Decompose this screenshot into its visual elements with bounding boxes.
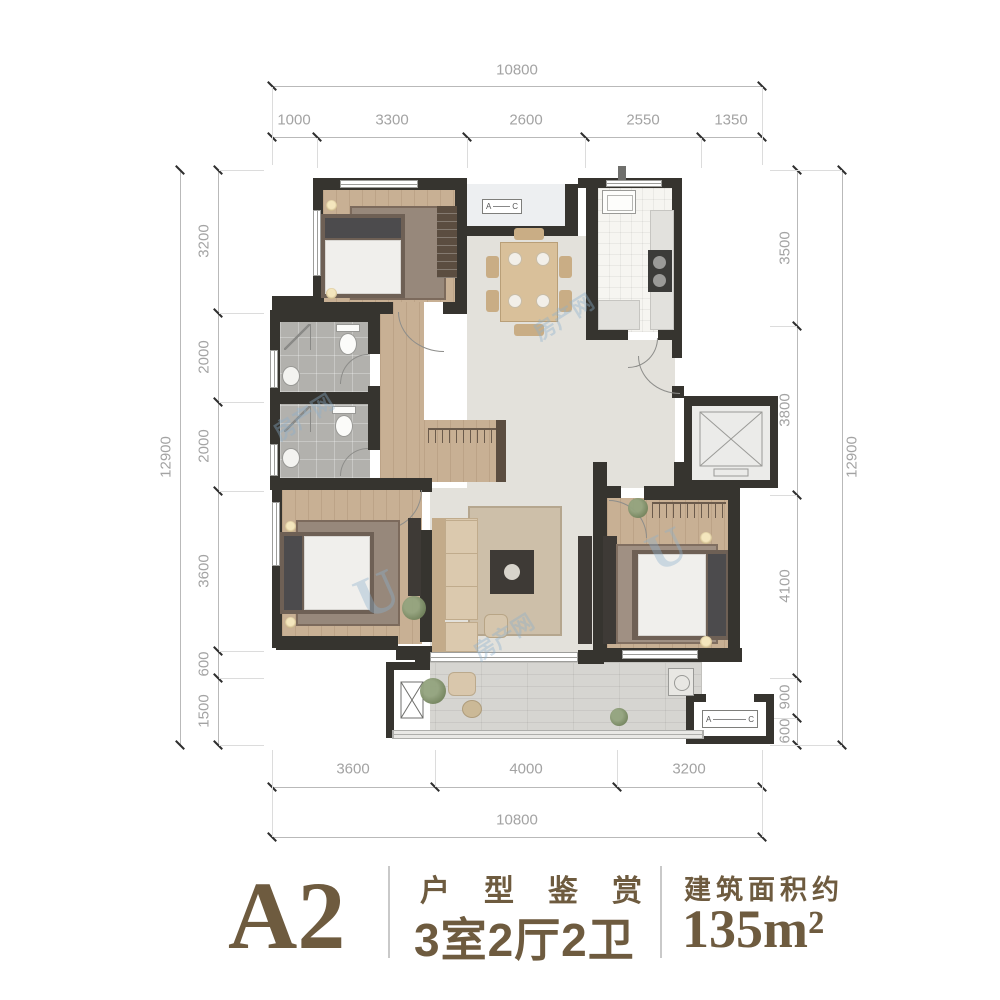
bed-pillows <box>284 536 302 610</box>
dining-chair <box>514 324 544 336</box>
dim-label: 3500 <box>777 231 794 264</box>
lamp <box>285 521 296 532</box>
plant <box>402 596 426 620</box>
lamp <box>700 532 712 544</box>
balcony-sliding-door <box>430 652 578 662</box>
burner <box>653 256 666 269</box>
dim-label: 3300 <box>375 112 408 129</box>
lamp <box>285 617 296 628</box>
ac-unit-label: AC <box>482 199 522 214</box>
elevator-wall <box>770 396 778 488</box>
ac-label-a: A <box>486 202 491 211</box>
dim-label: 2000 <box>196 340 213 373</box>
dining-chair <box>514 228 544 240</box>
dim-extension <box>467 138 468 168</box>
shower <box>284 406 311 432</box>
dim-line <box>272 86 762 87</box>
plant <box>610 708 628 726</box>
dim-label: 2550 <box>626 112 659 129</box>
dim-label: 2000 <box>196 429 213 462</box>
window <box>340 180 418 188</box>
laundry-sink <box>668 668 694 696</box>
lamp <box>326 288 337 299</box>
dim-label: 4100 <box>777 569 794 602</box>
bed-duvet <box>304 536 370 610</box>
dim-extension <box>219 651 264 652</box>
dim-extension <box>770 170 842 171</box>
dim-label: 3200 <box>672 761 705 778</box>
sink-basin <box>607 195 633 211</box>
ac-unit-label: AC <box>702 710 758 728</box>
dim-extension <box>219 170 264 171</box>
bed-pillows <box>325 218 401 238</box>
pouf <box>484 614 508 638</box>
sofa-back <box>432 518 445 652</box>
ac-label-line <box>493 206 510 207</box>
ac-label-line <box>713 719 746 720</box>
dim-label: 600 <box>777 718 794 743</box>
dim-line <box>272 787 762 788</box>
dim-label: 2600 <box>509 112 542 129</box>
tv-cabinet <box>408 518 421 596</box>
clothes-rail <box>652 502 726 518</box>
ac-label-a: A <box>706 715 711 724</box>
window <box>622 650 698 659</box>
sofa-chaise <box>445 622 478 652</box>
window <box>270 350 278 388</box>
area-value: 135m² <box>682 898 824 960</box>
wall <box>586 178 598 340</box>
plate <box>536 294 550 308</box>
wall <box>270 478 378 490</box>
wall <box>420 530 432 642</box>
wall <box>272 392 372 404</box>
dim-extension <box>770 326 797 327</box>
dim-extension <box>770 678 797 679</box>
burner <box>653 274 666 287</box>
closet-hanger-rail <box>428 428 498 443</box>
dining-chair <box>486 256 499 278</box>
tv-cabinet <box>578 536 592 644</box>
wall <box>443 302 467 314</box>
dim-extension <box>770 745 842 746</box>
dining-chair <box>559 256 572 278</box>
dim-extension <box>617 750 618 787</box>
sink-basin <box>674 675 690 691</box>
wall <box>386 662 394 738</box>
dim-label: 10800 <box>496 812 538 829</box>
dim-extension <box>770 495 797 496</box>
dim-extension <box>219 491 264 492</box>
balcony-railing <box>392 730 704 739</box>
floor-plan-page: 10800 1000 3300 2600 2550 1350 12900 320… <box>0 0 1000 1000</box>
bed-duvet <box>638 554 706 636</box>
elevator-wall <box>684 480 778 488</box>
wardrobe <box>437 206 457 278</box>
dining-chair <box>486 290 499 312</box>
dim-line <box>797 170 798 745</box>
dim-label: 3600 <box>196 554 213 587</box>
tv-cabinet <box>603 536 617 644</box>
toilet <box>332 406 356 414</box>
dim-extension <box>701 138 702 168</box>
closet-cabinet <box>496 420 506 482</box>
elevator-wall <box>684 396 692 488</box>
stove <box>648 250 672 292</box>
kitchen-sink <box>602 190 636 214</box>
dim-extension <box>435 750 436 787</box>
dim-label: 1500 <box>196 694 213 727</box>
wall <box>644 486 740 500</box>
dim-line <box>180 170 181 745</box>
shower <box>284 324 311 350</box>
dim-line <box>272 837 762 838</box>
plate <box>508 252 522 266</box>
wall <box>586 330 628 340</box>
elevator-cab <box>692 406 770 480</box>
window <box>313 210 321 276</box>
footer-divider <box>388 866 390 958</box>
plate <box>536 252 550 266</box>
toilet <box>335 415 353 437</box>
dim-label: 10800 <box>496 62 538 79</box>
ac-label-c: C <box>748 715 754 724</box>
dim-extension <box>762 750 763 837</box>
elevator-cross-icon <box>692 406 770 480</box>
dim-extension <box>762 87 763 165</box>
window <box>272 502 280 566</box>
balcony-chair <box>448 672 476 696</box>
dim-extension <box>219 745 264 746</box>
wall <box>593 462 607 500</box>
wall <box>368 310 380 354</box>
wall <box>313 302 393 314</box>
faucet-icon <box>618 166 626 180</box>
plan-code: A2 <box>228 868 345 964</box>
dim-label: 12900 <box>158 436 175 478</box>
elevator-wall <box>684 396 778 406</box>
dim-label: 3800 <box>777 393 794 426</box>
dim-line <box>272 137 762 138</box>
window <box>270 444 278 476</box>
dim-extension <box>770 718 797 719</box>
plate <box>508 294 522 308</box>
layout-summary: 3室2厅2卫 <box>414 904 635 970</box>
bed-duvet <box>325 240 401 294</box>
window <box>606 180 662 187</box>
bathroom-sink <box>282 448 300 468</box>
wall <box>578 650 604 664</box>
coffee-table-decor <box>504 564 520 580</box>
dim-label: 1350 <box>714 112 747 129</box>
balcony-table <box>462 700 482 718</box>
wall <box>658 330 682 340</box>
dining-chair <box>559 290 572 312</box>
wall <box>607 486 621 498</box>
footer-divider <box>660 866 662 958</box>
bathroom-sink <box>282 366 300 386</box>
dim-label: 900 <box>777 684 794 709</box>
kitchen-counter <box>598 300 640 330</box>
dim-label: 600 <box>196 651 213 676</box>
dim-label: 3600 <box>336 761 369 778</box>
dim-extension <box>219 402 264 403</box>
wall <box>728 486 740 662</box>
lamp <box>326 200 337 211</box>
wall <box>276 636 398 650</box>
dim-label: 3200 <box>196 224 213 257</box>
dim-extension <box>272 750 273 837</box>
plant <box>420 678 446 704</box>
toilet <box>336 324 360 332</box>
dim-extension <box>219 678 264 679</box>
dim-line <box>218 170 219 745</box>
lamp <box>700 636 712 648</box>
dim-label: 4000 <box>509 761 542 778</box>
dim-extension <box>219 313 264 314</box>
ac-label-c: C <box>512 202 518 211</box>
dim-extension <box>317 138 318 168</box>
wall <box>565 184 578 230</box>
sofa <box>445 518 478 620</box>
dim-label: 1000 <box>277 112 310 129</box>
dim-extension <box>272 87 273 165</box>
bed-pillows <box>708 554 726 636</box>
toilet <box>339 333 357 355</box>
dim-extension <box>585 138 586 168</box>
dim-label: 12900 <box>844 436 861 478</box>
plant <box>628 498 648 518</box>
